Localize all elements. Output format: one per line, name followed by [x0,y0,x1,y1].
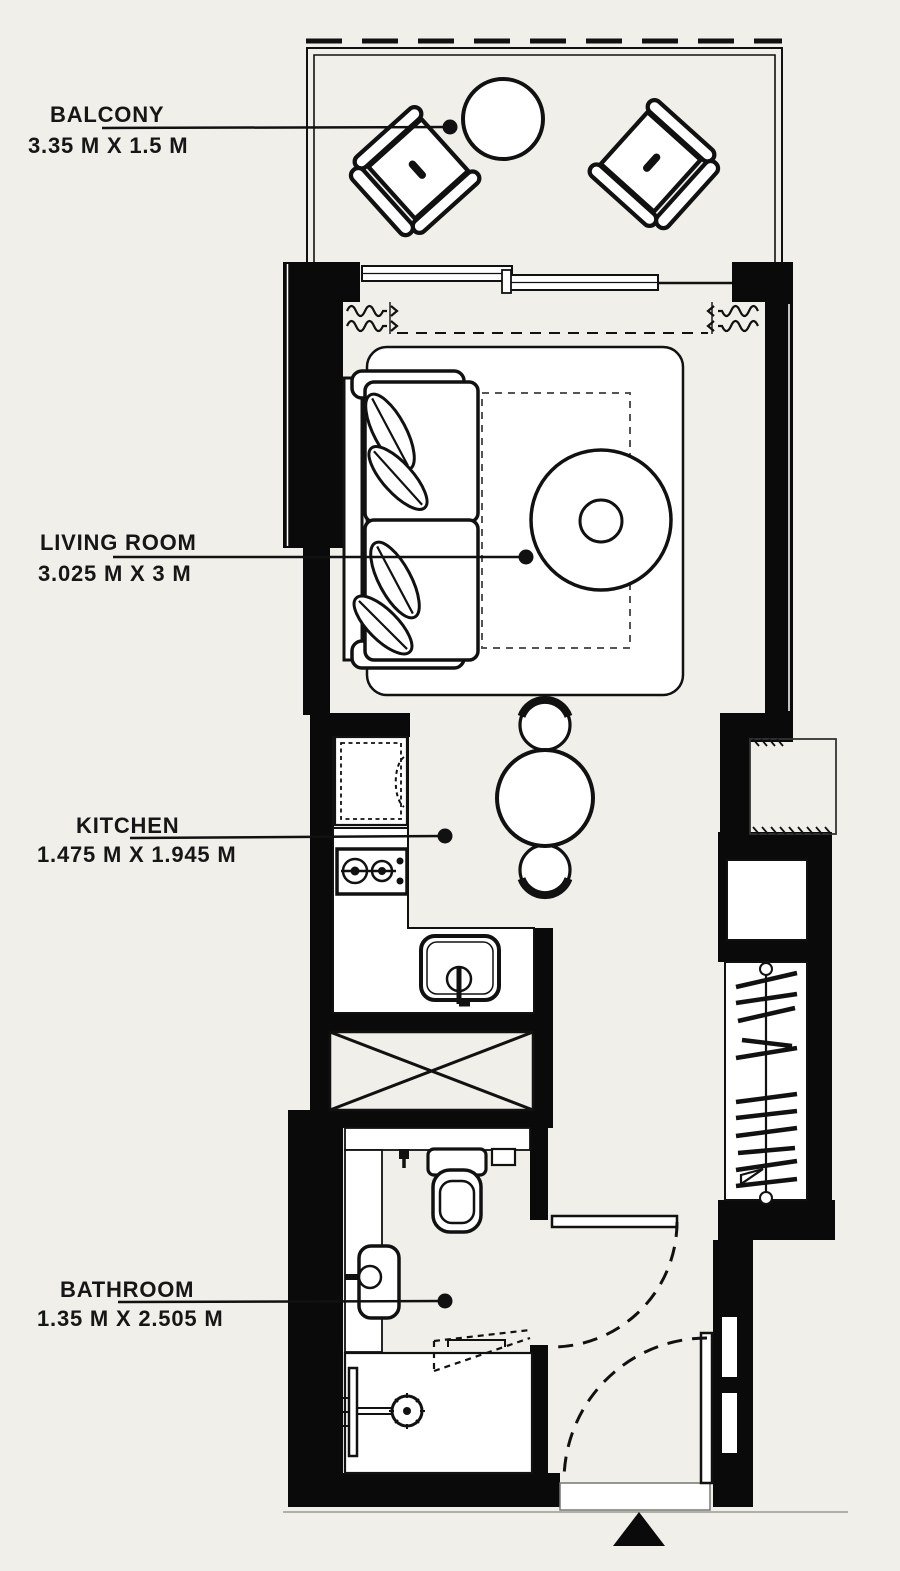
dining-chair-icon [520,845,570,895]
leader-dot [519,550,534,565]
room-name: KITCHEN [76,813,179,838]
door-jamb-slot [722,1317,737,1377]
room-dimensions: 3.025 M X 3 M [38,561,191,586]
toilet-icon [399,1149,515,1232]
balcony-area [306,41,782,262]
stove-icon [337,849,407,894]
balcony-armchair-icon [343,104,482,243]
curtain-icon [347,302,397,334]
balcony-table-icon [463,79,543,159]
leader-dot [438,829,453,844]
leader-dot [443,120,458,135]
entrance-arrow-icon [613,1512,665,1546]
room-dimensions: 3.35 M X 1.5 M [28,133,188,158]
dining-chair-icon [520,700,570,750]
leader-dot [438,1294,453,1309]
sofa-icon [344,371,478,668]
room-dimensions: 1.35 M X 2.505 M [37,1306,223,1331]
leader-line [102,127,450,128]
dining-table-icon [497,750,593,846]
hatch-ticks [753,739,831,834]
door-swing-icon [564,1338,707,1481]
doors [552,1216,737,1510]
floor-plan-page: BALCONY 3.35 M X 1.5 M LIVING ROOM 3.025… [0,0,900,1571]
curtain-icon [708,302,758,334]
utility-box [727,860,807,940]
room-name: LIVING ROOM [40,530,197,555]
shower-icon [343,1353,532,1473]
kitchen-sink-icon [421,936,499,1004]
ac-ledge [750,739,836,834]
dining-set [497,700,593,895]
wardrobe-hangers-icon [725,962,807,1204]
fridge-icon [333,737,408,828]
vanity-basin-icon [345,1150,399,1352]
coffee-table-icon [531,450,671,590]
bathroom-door-leaf [552,1216,677,1227]
room-dimensions: 1.475 M X 1.945 M [37,842,236,867]
balcony-armchair-icon [587,97,726,236]
shaft-cross-icon [330,1032,533,1110]
bathroom-ledge [345,1128,530,1150]
room-name: BALCONY [50,102,164,127]
curtains [347,302,758,334]
door-swing-icon [552,1222,677,1347]
living-room-area [344,347,683,695]
shower-threshold-line [448,1340,505,1347]
sliding-door-icon [362,266,732,293]
entry-door-leaf [701,1333,712,1483]
floor-plan-canvas: BALCONY 3.35 M X 1.5 M LIVING ROOM 3.025… [0,0,900,1571]
door-jamb-slot [722,1393,737,1453]
leader-line [118,1301,445,1302]
room-name: BATHROOM [60,1277,194,1302]
entry-threshold [560,1483,710,1510]
